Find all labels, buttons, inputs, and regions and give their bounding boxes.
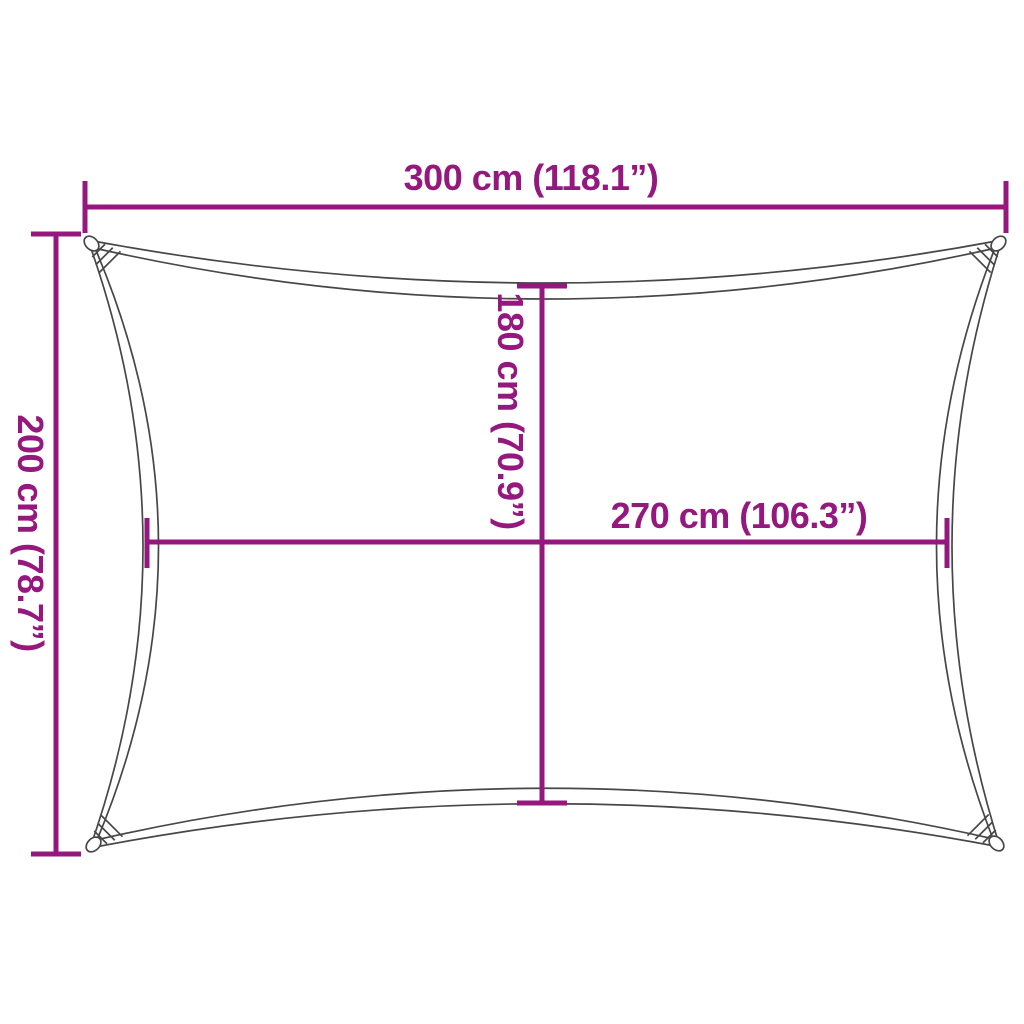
left-height-label: 200 cm (78.7”) — [12, 414, 48, 651]
corner-loop-top-left-icon — [75, 227, 121, 273]
top-width-label: 300 cm (118.1”) — [404, 160, 659, 196]
sail-top-edge-inner — [94, 248, 996, 299]
sail-left-edge-outer — [88, 240, 143, 848]
corner-loop-top-right-icon — [969, 227, 1015, 273]
inner-width-label: 270 cm (106.3”) — [611, 498, 868, 534]
sail-right-edge-outer — [952, 240, 1002, 847]
corner-loop-bottom-right-icon — [967, 814, 1013, 860]
corner-loop-bottom-left-icon — [77, 815, 123, 861]
shade-sail-dimension-diagram: 300 cm (118.1”) 200 cm (78.7”) 180 cm (7… — [0, 0, 1024, 1024]
sail-bottom-edge-outer — [90, 804, 1000, 848]
sail-top-edge-outer — [88, 240, 1002, 283]
sail-bottom-edge-inner — [96, 788, 994, 840]
inner-height-label: 180 cm (70.9”) — [492, 292, 528, 529]
